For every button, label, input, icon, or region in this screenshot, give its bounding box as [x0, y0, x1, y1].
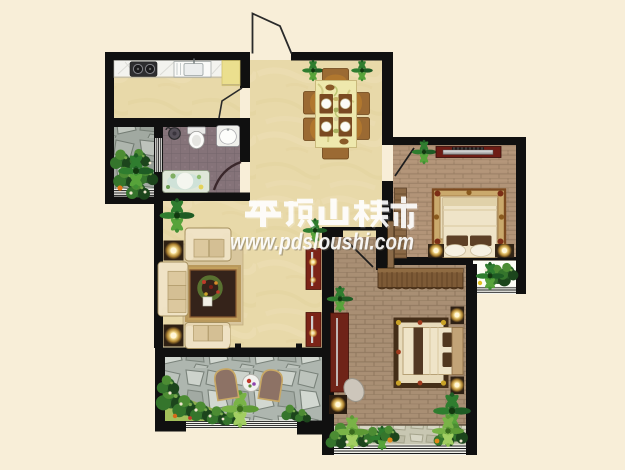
svg-text:www.pdsloushi.com: www.pdsloushi.com — [230, 229, 414, 255]
